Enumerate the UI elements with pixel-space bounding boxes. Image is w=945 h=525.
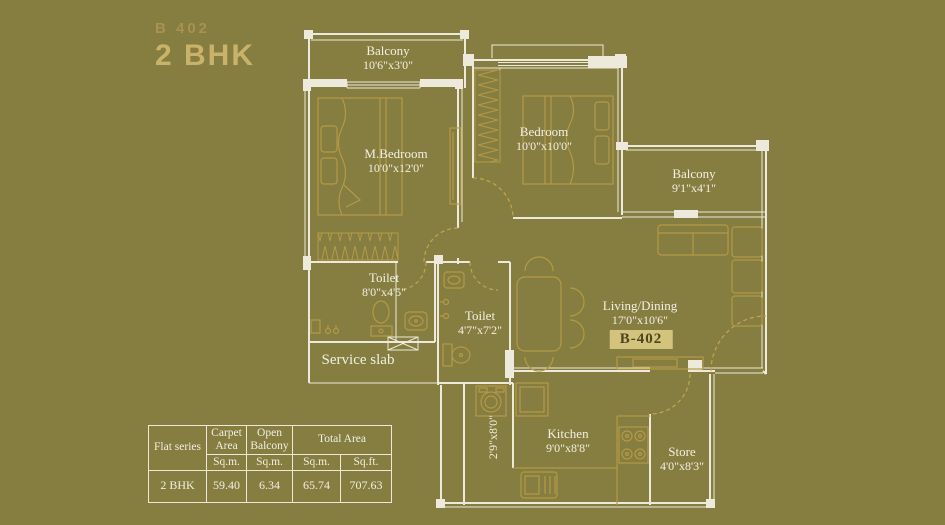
unit-sqm: Sq.m.	[207, 454, 247, 470]
col-flat-series: Flat series	[149, 426, 207, 471]
dining-table	[517, 257, 584, 371]
floor-plan-drawing	[0, 0, 945, 525]
room-label-toilet-attached: Toilet 8'0"x4'5"	[362, 271, 406, 300]
room-label-bedroom: Bedroom 10'0"x10'0"	[516, 125, 572, 154]
room-name: Bedroom	[516, 125, 572, 140]
room-label-utility: 2'9"x8'0"	[487, 415, 501, 459]
room-dims: 10'0"x10'0"	[516, 140, 572, 154]
col-total-area: Total Area	[293, 426, 392, 455]
unit-badge: B-402	[610, 330, 673, 349]
carpet-sqm-cell: 59.40	[207, 470, 247, 502]
room-dims: 10'0"x12'0"	[364, 162, 427, 176]
washing-machine	[476, 386, 506, 416]
room-label-living-dining: Living/Dining 17'0"x10'6"	[603, 299, 677, 328]
floor-plan-page: { "title": { "series": "B 402", "type": …	[0, 0, 945, 525]
flat-type-cell: 2 BHK	[149, 470, 207, 502]
unit-sqft: Sq.ft.	[341, 454, 392, 470]
room-label-store: Store 4'0"x8'3"	[660, 445, 704, 474]
room-dims: 9'0"x8'8"	[546, 442, 590, 456]
col-carpet-area: Carpet Area	[207, 426, 247, 455]
room-name: Kitchen	[546, 427, 590, 442]
room-dims: 4'7"x7'2"	[458, 324, 502, 338]
table-data-row: 2 BHK 59.40 6.34 65.74 707.63	[149, 470, 392, 502]
total-sqm-cell: 65.74	[293, 470, 341, 502]
room-name: Balcony	[672, 167, 716, 182]
room-name: Balcony	[363, 44, 413, 59]
room-label-kitchen: Kitchen 9'0"x8'8"	[546, 427, 590, 456]
total-sqft-cell: 707.63	[341, 470, 392, 502]
room-dims: 17'0"x10'6"	[603, 314, 677, 328]
room-name: M.Bedroom	[364, 147, 427, 162]
room-dims: 9'1"x4'1"	[672, 182, 716, 196]
unit-type-title: 2 BHK	[155, 39, 255, 73]
room-dims: 10'6"x3'0"	[363, 59, 413, 73]
toilet1-fixtures	[311, 301, 427, 336]
room-label-toilet-common: Toilet 4'7"x7'2"	[458, 309, 502, 338]
room-name: Store	[660, 445, 704, 460]
room-dims: 4'0"x8'3"	[660, 460, 704, 474]
table-header-row: Flat series Carpet Area Open Balcony Tot…	[149, 426, 392, 455]
unit-sqm: Sq.m.	[247, 454, 293, 470]
room-label-m-bedroom: M.Bedroom 10'0"x12'0"	[364, 147, 427, 176]
room-label-balcony-right: Balcony 9'1"x4'1"	[672, 167, 716, 196]
open-balcony-sqm-cell: 6.34	[247, 470, 293, 502]
title-block: B 402 2 BHK	[155, 20, 255, 73]
room-label-balcony-top: Balcony 10'6"x3'0"	[363, 44, 413, 73]
col-open-balcony: Open Balcony	[247, 426, 293, 455]
service-slab-label: Service slab	[322, 352, 395, 369]
room-dims: 8'0"x4'5"	[362, 286, 406, 300]
room-name: Toilet	[458, 309, 502, 324]
unit-sqm: Sq.m.	[293, 454, 341, 470]
room-name: Toilet	[362, 271, 406, 286]
area-table: Flat series Carpet Area Open Balcony Tot…	[148, 425, 392, 503]
room-name: Living/Dining	[603, 299, 677, 314]
unit-number-title: B 402	[155, 20, 255, 37]
room-dims: 2'9"x8'0"	[487, 415, 501, 459]
